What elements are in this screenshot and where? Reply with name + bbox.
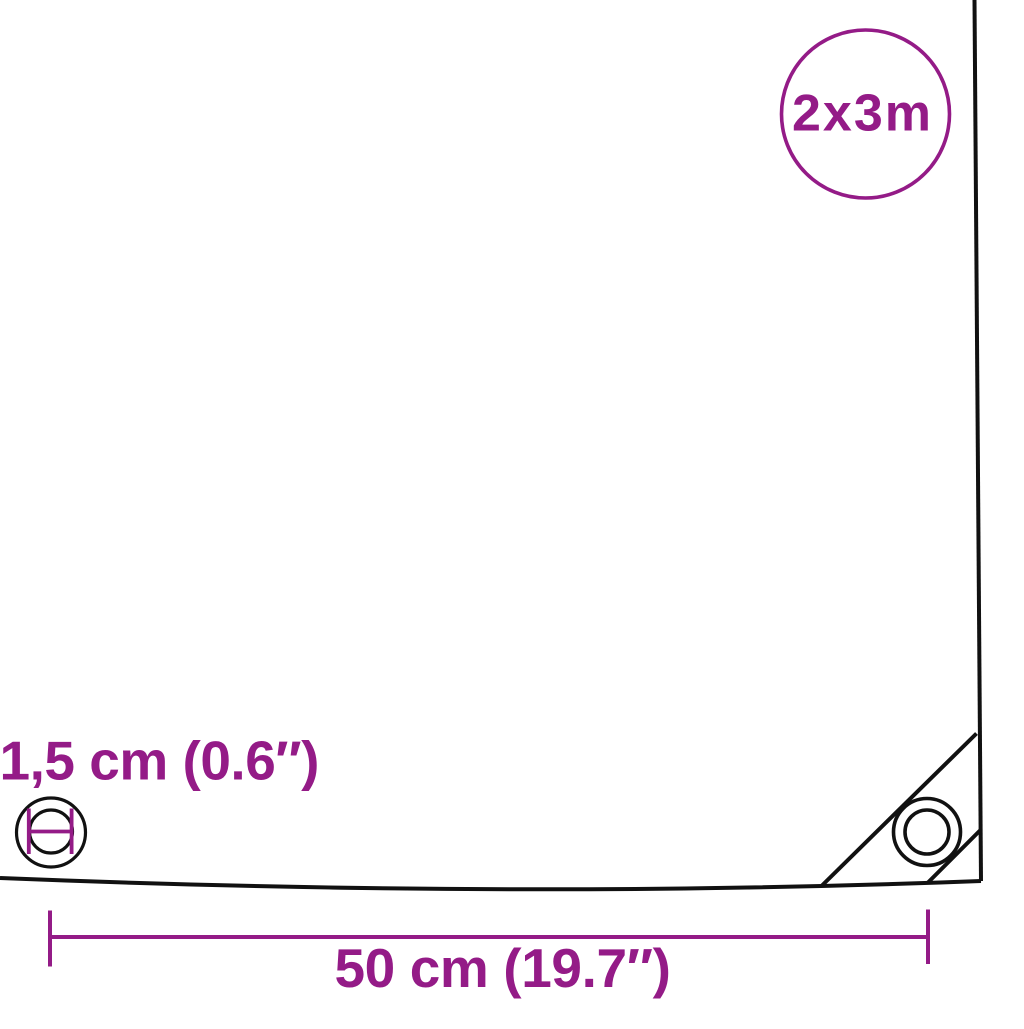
svg-text:2x3m: 2x3m	[792, 85, 933, 143]
svg-text:50 cm (19.7″): 50 cm (19.7″)	[334, 937, 670, 999]
svg-text:1,5 cm (0.6″): 1,5 cm (0.6″)	[0, 730, 319, 792]
